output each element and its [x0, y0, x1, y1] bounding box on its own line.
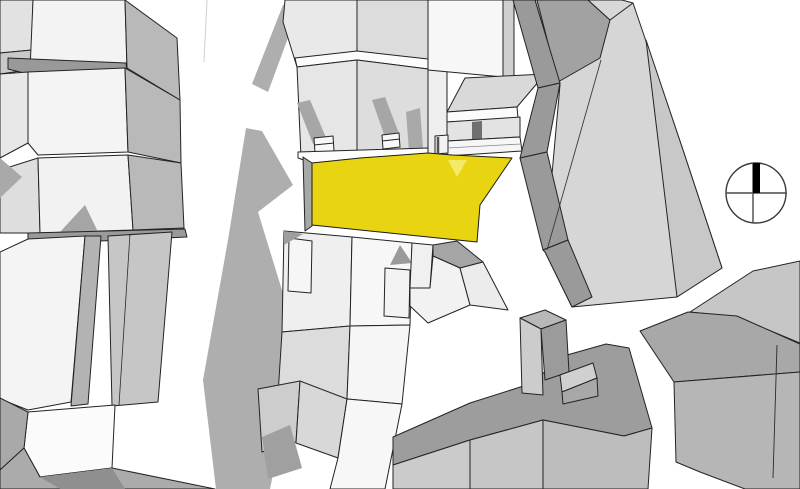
parcel-west-sliver [303, 157, 312, 231]
north-row-wedge-east [503, 0, 514, 77]
chimney-shadow-3 [406, 108, 423, 151]
left-block-row3-side [128, 155, 184, 230]
south-row-dormer-1 [288, 238, 312, 293]
north-row-building-east [428, 0, 503, 77]
south-row-house-3 [410, 243, 433, 288]
left-lower-notch [24, 405, 115, 477]
se-tower-side [541, 320, 569, 380]
south-row-dormer-2 [384, 268, 410, 318]
south-row-lower-right [347, 325, 410, 404]
left-lower-west-face [0, 236, 85, 410]
se-tower-front [520, 318, 543, 395]
north-compass-icon [726, 163, 787, 223]
left-block-row2-roof [28, 68, 128, 155]
left-block-col-top [0, 0, 33, 53]
compass-north-needle [753, 163, 760, 193]
site-model-canvas[interactable] [0, 0, 800, 489]
site-3d-view [0, 0, 800, 489]
left-block-row2-left [0, 72, 28, 158]
north-row-roof-right [357, 0, 428, 60]
